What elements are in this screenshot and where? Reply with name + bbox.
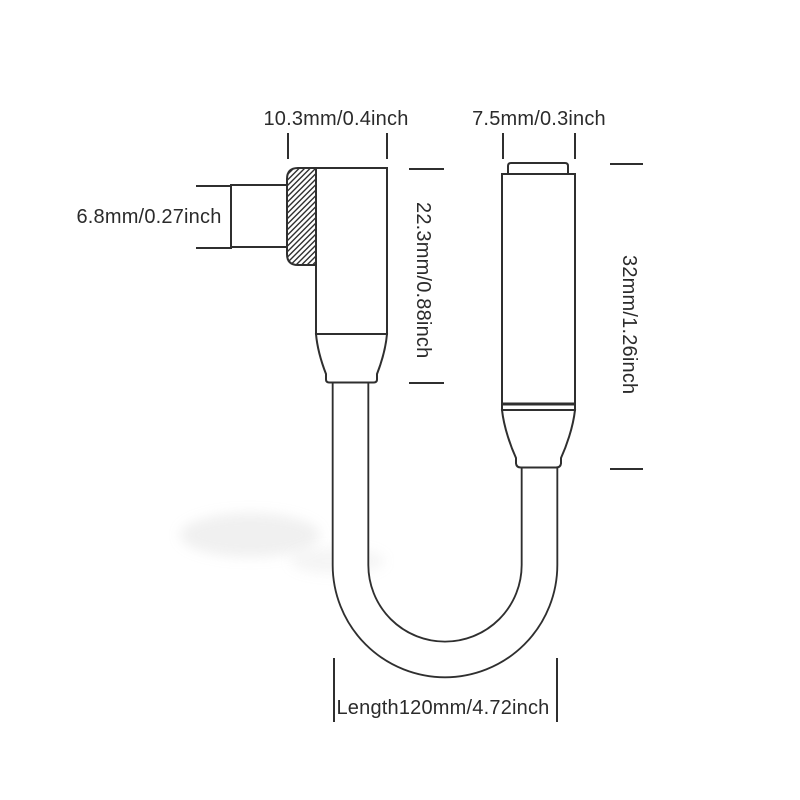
dimension-label-usbc-body-length: 22.3mm/0.88inch bbox=[412, 202, 434, 358]
jack-strain-relief bbox=[502, 410, 575, 468]
usbc-hatched-collar bbox=[287, 168, 316, 265]
usbc-body bbox=[316, 168, 387, 334]
jack-connector bbox=[502, 163, 575, 468]
dimension-label-jack-body-length: 32mm/1.26inch bbox=[618, 255, 640, 394]
dimension-label-usbc-plug-height: 6.8mm/0.27inch bbox=[39, 206, 259, 228]
usbc-strain-relief bbox=[316, 334, 387, 383]
product-dimension-diagram: 10.3mm/0.4inch 7.5mm/0.3inch 6.8mm/0.27i… bbox=[0, 0, 800, 800]
usbc-connector bbox=[231, 168, 387, 383]
jack-cap bbox=[508, 163, 568, 174]
jack-body bbox=[502, 174, 575, 410]
dimension-label-cable-length: Length120mm/4.72inch bbox=[323, 697, 563, 719]
dimension-label-usbc-width: 10.3mm/0.4inch bbox=[226, 108, 446, 130]
dimension-label-jack-width: 7.5mm/0.3inch bbox=[429, 108, 649, 130]
